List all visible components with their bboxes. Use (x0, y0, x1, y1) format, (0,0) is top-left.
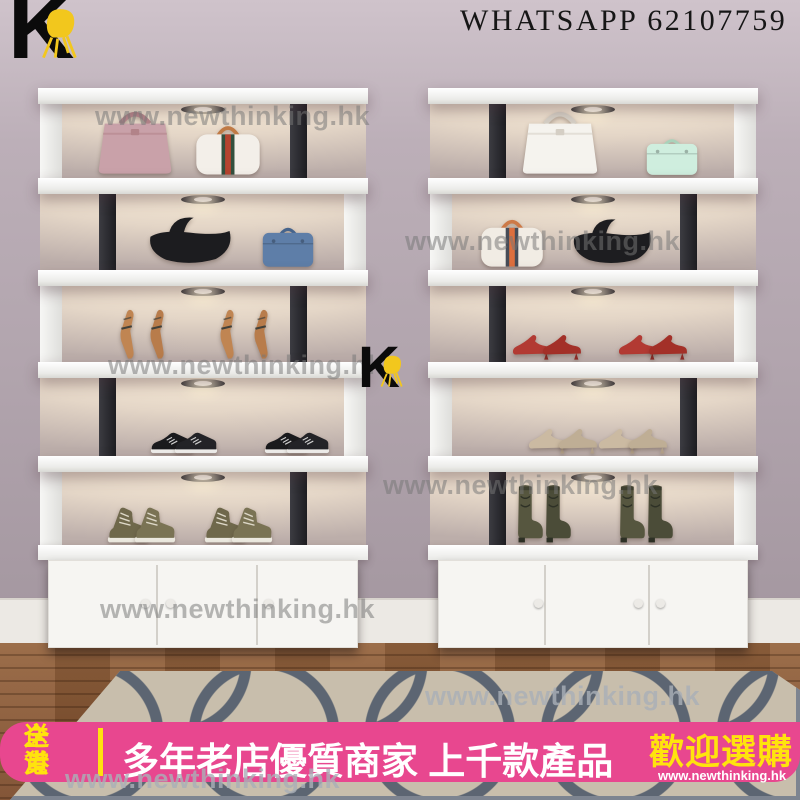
brand-marks-layer: K K (0, 0, 800, 800)
promo-banner: 全港 送貨 多年老店優質商家 上千款產品 歡迎選購 www.newthinkin… (0, 722, 800, 782)
banner-site-url: www.newthinking.hk (658, 768, 786, 783)
banner-headline: 多年老店優質商家 上千款產品 (122, 731, 613, 785)
yellow-chair-icon (36, 8, 84, 60)
whatsapp-contact-text: WHATSAPP 62107759 (460, 4, 787, 38)
yellow-chair-icon (377, 355, 407, 388)
chair-icon-wrap (36, 8, 84, 60)
delivery-line2: 送貨 (24, 724, 51, 778)
banner-divider (98, 728, 103, 776)
product-photo-scene: www.newthinking.hkwww.newthinking.hkwww.… (0, 0, 800, 800)
chair-icon-wrap (377, 355, 407, 388)
